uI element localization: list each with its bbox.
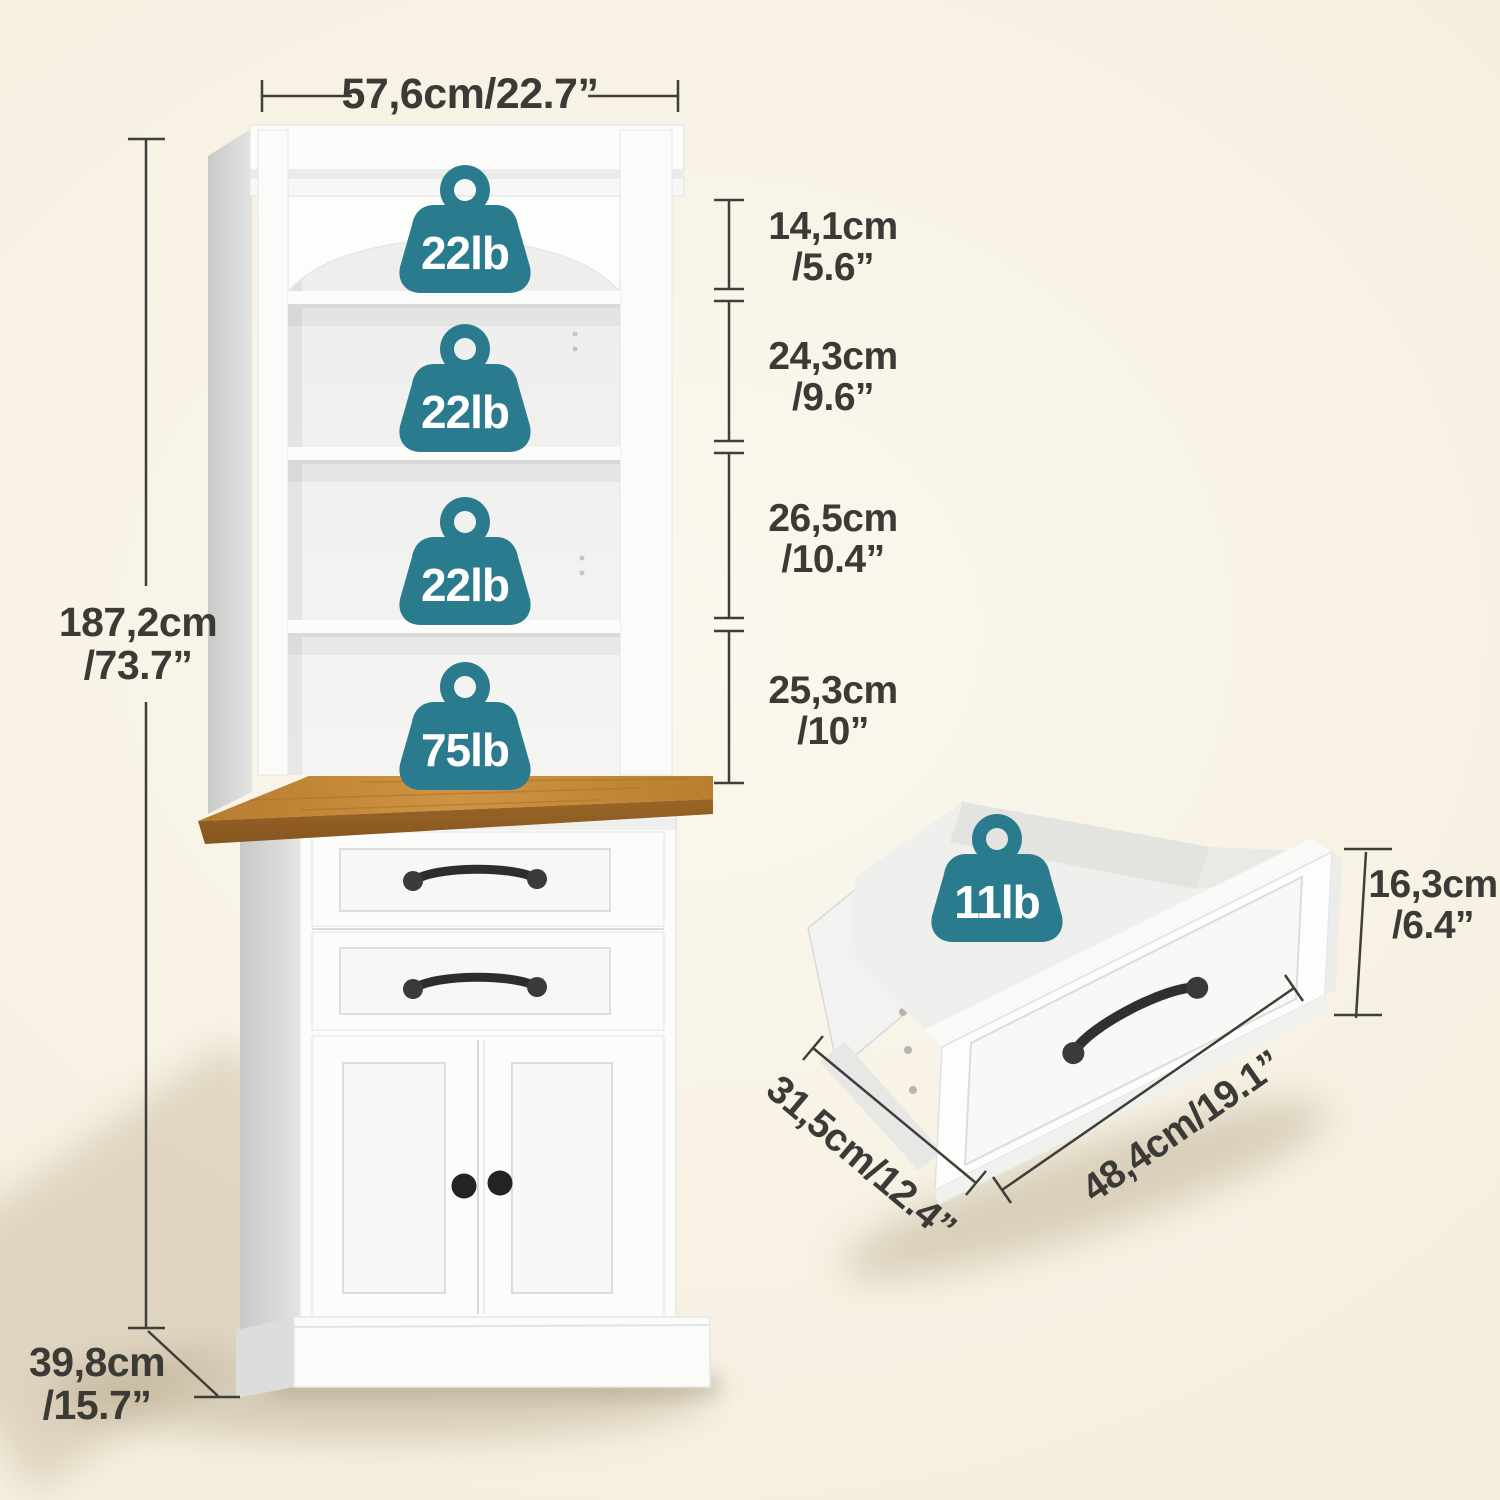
shelf-dimension-lines (714, 200, 744, 783)
right-pillar (620, 130, 672, 775)
shelf3-weight-label: 22lb (390, 547, 540, 623)
shelf-gap-1-label: 14,1cm /5.6” (748, 206, 918, 289)
hutch-side-face (208, 128, 252, 814)
left-pillar (258, 130, 288, 775)
drawer-height-in: /6.4” (1392, 905, 1474, 946)
base-side-face (240, 818, 300, 1336)
drawer-height-label: 16,3cm /6.4” (1366, 864, 1500, 947)
shelf-gap-4-in: /10” (797, 711, 869, 752)
shelf-gap-4-label: 25,3cm /10” (748, 670, 918, 753)
shelf-gap-2-in: /9.6” (792, 377, 874, 418)
drawer-height-cm: 16,3cm (1368, 864, 1497, 905)
shelf2-weight-label: 22lb (390, 374, 540, 450)
overall-height-cm: 187,2cm (59, 601, 217, 644)
shelf-gap-2-label: 24,3cm /9.6” (748, 336, 918, 419)
shelf1-weight-label: 22lb (390, 215, 540, 291)
shelf-gap-1-in: /5.6” (792, 247, 874, 288)
screws (899, 1008, 917, 1094)
weight-capacity-badge: 75lb (390, 660, 540, 792)
door-knob-icon (488, 1171, 513, 1196)
overall-depth-label: 39,8cm /15.7” (8, 1341, 186, 1428)
weight-capacity-badge: 22lb (390, 163, 540, 295)
drawer-front (312, 932, 664, 1030)
base-cabinet (294, 816, 710, 1387)
weight-capacity-badge: 22lb (390, 322, 540, 454)
plinth-side-face (236, 1317, 294, 1398)
shelf-gap-1-cm: 14,1cm (768, 206, 897, 247)
shelf (288, 291, 620, 326)
door-panel (343, 1063, 445, 1293)
overall-width-label: 57,6cm/22.7” (330, 72, 610, 118)
door-knob-icon (452, 1174, 477, 1199)
shelf-gap-3-label: 26,5cm /10.4” (748, 498, 918, 581)
shelf-gap-2-cm: 24,3cm (768, 336, 897, 377)
weight-capacity-badge: 22lb (390, 495, 540, 627)
overall-depth-cm: 39,8cm (29, 1341, 165, 1384)
drawer-front (312, 832, 664, 926)
overall-height-label: 187,2cm /73.7” (38, 601, 238, 688)
shelf-gap-3-cm: 26,5cm (768, 498, 897, 539)
overall-height-in: /73.7” (84, 644, 193, 687)
door-panel (512, 1063, 612, 1293)
drawer-weight-label: 11lb (922, 864, 1072, 940)
shelf-gap-3-in: /10.4” (781, 539, 884, 580)
countertop-weight-label: 75lb (390, 712, 540, 788)
weight-capacity-badge: 11lb (922, 812, 1072, 944)
cabinet-doors (312, 1036, 664, 1317)
shelf-gap-4-cm: 25,3cm (768, 670, 897, 711)
overall-depth-in: /15.7” (43, 1384, 152, 1427)
product-dimension-diagram: 22lb 22lb 22lb 75lb 11lb 57,6cm/22.7” 18… (0, 0, 1500, 1500)
plinth (294, 1317, 710, 1387)
